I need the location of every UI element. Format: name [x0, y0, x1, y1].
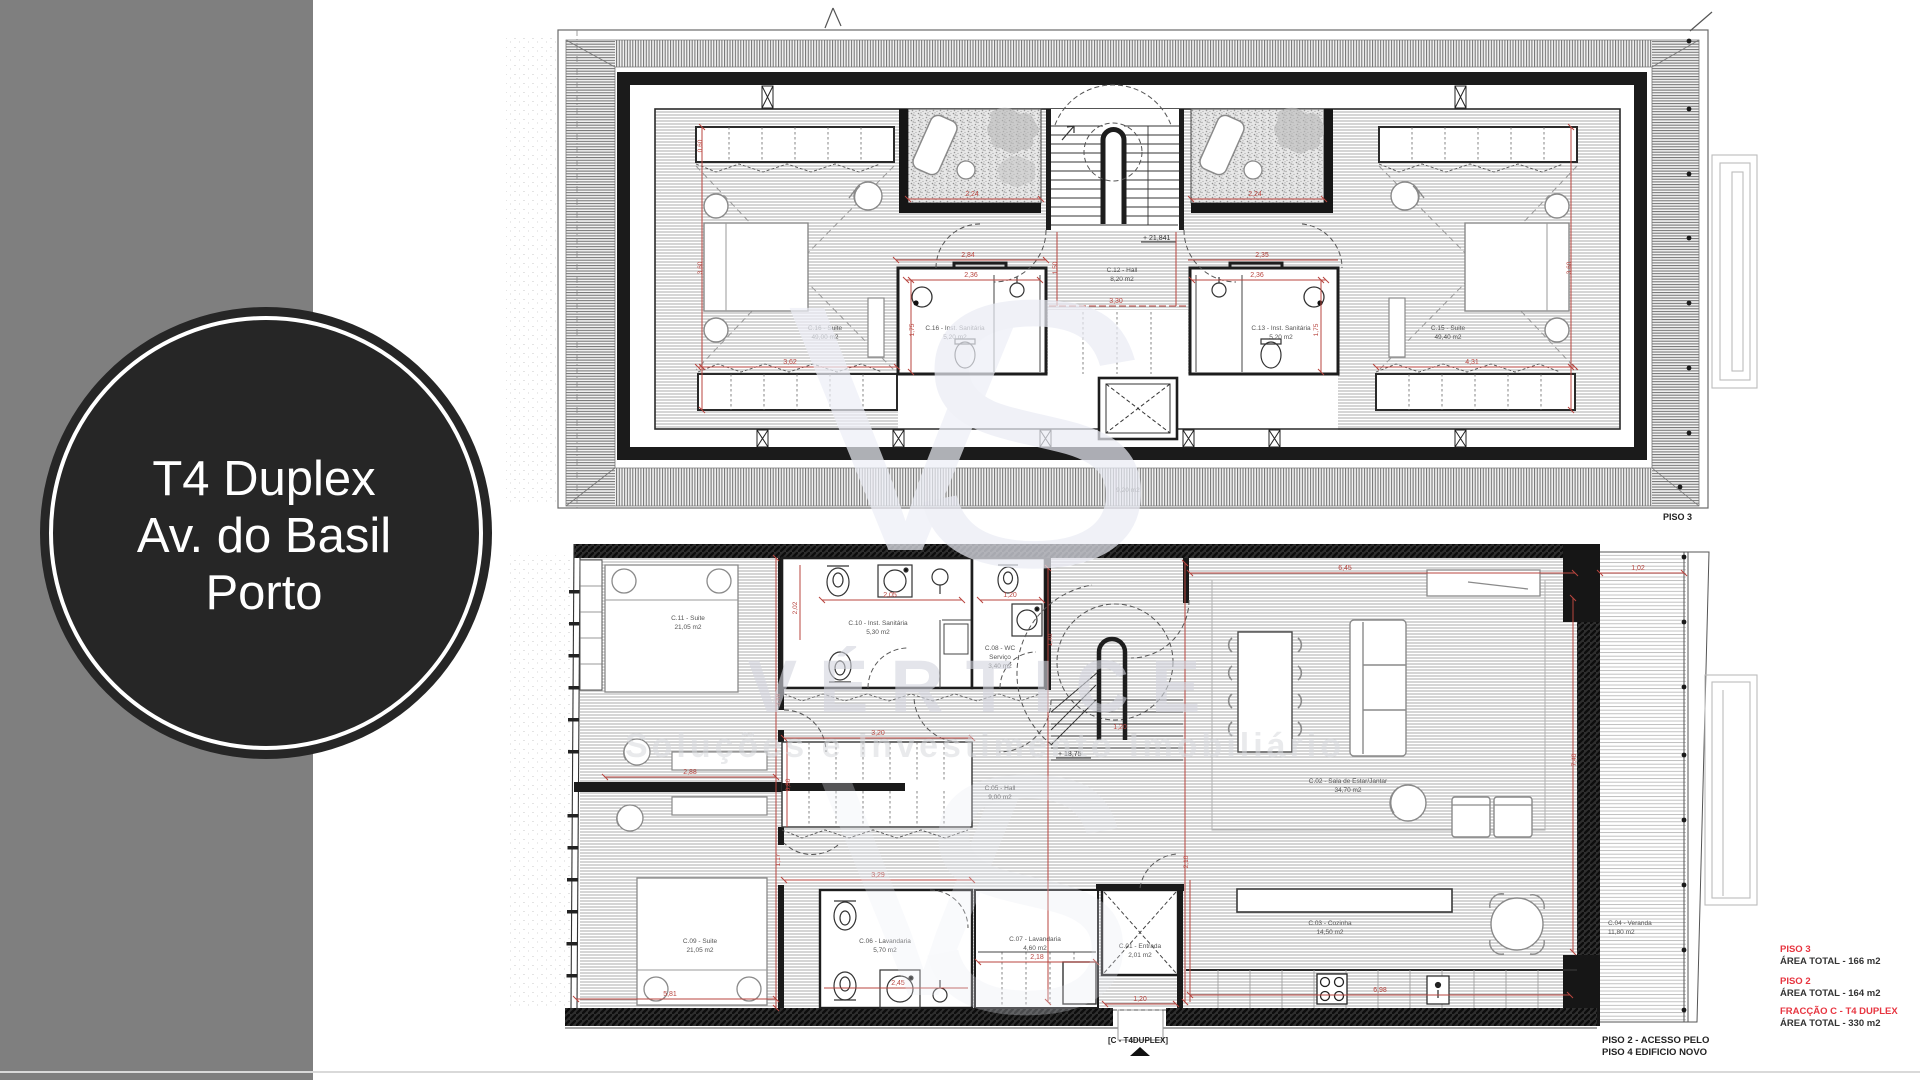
svg-text:2,35: 2,35 [1255, 252, 1269, 259]
svg-text:C.02 - Sala de Estar/Jantar: C.02 - Sala de Estar/Jantar [1309, 778, 1388, 785]
svg-text:49,40 m2: 49,40 m2 [1434, 334, 1461, 341]
svg-text:5,81: 5,81 [663, 991, 677, 998]
svg-text:C.03 - Cozinha: C.03 - Cozinha [1308, 920, 1352, 927]
svg-text:Av. do Basil: Av. do Basil [137, 509, 391, 563]
svg-text:2,88: 2,88 [683, 769, 697, 776]
svg-text:PISO 2 - ACESSO PELO: PISO 2 - ACESSO PELO [1602, 1035, 1709, 1046]
svg-text:VÉRTICE: VÉRTICE [748, 645, 1223, 728]
svg-text:C.04 - Veranda: C.04 - Veranda [1608, 920, 1652, 927]
svg-text:3,60: 3,60 [1566, 261, 1573, 274]
svg-text:PISO 3: PISO 3 [1663, 512, 1692, 522]
svg-text:11,80 m2: 11,80 m2 [1608, 929, 1635, 936]
svg-text:1,75: 1,75 [1313, 323, 1320, 336]
svg-text:FRACÇÃO C - T4 DUPLEX: FRACÇÃO C - T4 DUPLEX [1780, 1006, 1898, 1017]
svg-text:C.13 - Inst. Sanitária: C.13 - Inst. Sanitária [1251, 325, 1311, 332]
svg-text:PISO 3: PISO 3 [1780, 944, 1811, 955]
svg-text:5,30 m2: 5,30 m2 [866, 629, 890, 636]
svg-text:34,70 m2: 34,70 m2 [1334, 787, 1361, 794]
svg-text:PISO 4 EDIFICIO NOVO: PISO 4 EDIFICIO NOVO [1602, 1047, 1707, 1058]
svg-text:4,31: 4,31 [1465, 359, 1479, 366]
svg-text:7,40: 7,40 [1571, 753, 1578, 766]
svg-text:2,10: 2,10 [1183, 855, 1190, 868]
svg-text:1,17: 1,17 [775, 853, 782, 866]
svg-text:PISO 2: PISO 2 [1780, 976, 1811, 987]
svg-text:T4 Duplex: T4 Duplex [152, 452, 375, 506]
svg-text:ÁREA TOTAL - 164 m2: ÁREA TOTAL - 164 m2 [1780, 988, 1880, 999]
svg-text:C.09 - Suite: C.09 - Suite [683, 938, 718, 945]
svg-text:0,80: 0,80 [785, 778, 792, 791]
svg-text:1,02: 1,02 [1631, 565, 1645, 572]
svg-text:ÁREA TOTAL - 166 m2: ÁREA TOTAL - 166 m2 [1780, 956, 1880, 967]
svg-text:21,05 m2: 21,05 m2 [674, 624, 701, 631]
svg-text:0,60: 0,60 [697, 139, 704, 152]
svg-text:[C - T4DUPLEX]: [C - T4DUPLEX] [1108, 1036, 1168, 1045]
svg-text:14,50 m2: 14,50 m2 [1316, 929, 1343, 936]
svg-text:S: S [905, 221, 1158, 646]
svg-text:C.15 - Suite: C.15 - Suite [1431, 325, 1466, 332]
svg-text:6,45: 6,45 [1338, 565, 1352, 572]
svg-text:Soluções e Investimento Imobil: Soluções e Investimento Imobiliário [625, 727, 1345, 765]
svg-text:2,24: 2,24 [1248, 191, 1262, 198]
svg-text:2,24: 2,24 [965, 191, 979, 198]
svg-text:ÁREA TOTAL - 330 m2: ÁREA TOTAL - 330 m2 [1780, 1018, 1880, 1029]
svg-text:Porto: Porto [205, 566, 322, 620]
svg-text:2,36: 2,36 [1250, 272, 1264, 279]
svg-text:C.11 - Suite: C.11 - Suite [671, 615, 705, 622]
svg-text:5,20 m2: 5,20 m2 [1269, 334, 1293, 341]
svg-text:21,05 m2: 21,05 m2 [686, 947, 713, 954]
svg-text:3,60: 3,60 [697, 261, 704, 274]
svg-text:6,98: 6,98 [1373, 987, 1387, 994]
